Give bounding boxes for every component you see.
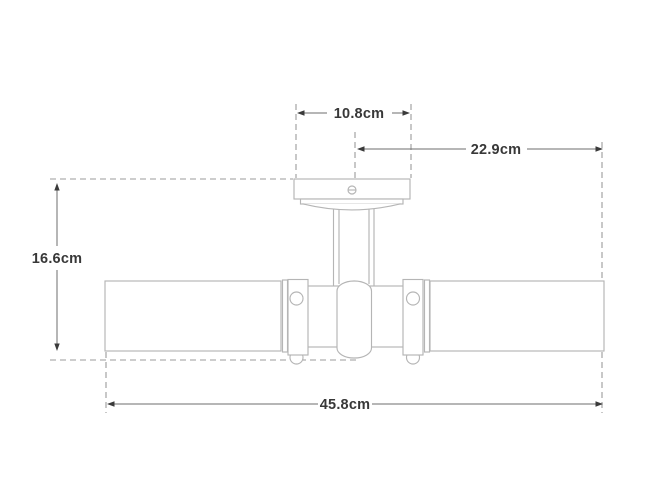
diagram-svg: 10.8cm 22.9cm 16.6cm 45.8cm	[0, 0, 670, 503]
arrow-down-icon	[54, 344, 59, 352]
canopy	[294, 179, 410, 210]
stem	[334, 204, 375, 288]
right-holder-band	[403, 280, 423, 356]
arrow-up-icon	[54, 183, 59, 191]
right-shade	[430, 281, 604, 351]
canopy-dome	[303, 204, 401, 210]
canopy-lip	[301, 199, 404, 204]
dimension-diagram: 10.8cm 22.9cm 16.6cm 45.8cm	[0, 0, 670, 503]
fixture	[105, 179, 604, 364]
right-arm	[369, 286, 405, 347]
canopy-width-label: 10.8cm	[334, 106, 384, 122]
center-body	[337, 281, 372, 358]
arrow-left-icon	[107, 401, 115, 406]
left-holder-band	[288, 280, 308, 356]
arrow-left-icon	[297, 110, 305, 115]
right-shade-ring	[425, 280, 430, 352]
overall-height-label: 16.6cm	[32, 251, 82, 267]
stem-body	[334, 204, 375, 288]
dimension-labels: 10.8cm 22.9cm 16.6cm 45.8cm	[32, 106, 521, 413]
arrow-right-icon	[403, 110, 411, 115]
center-to-end-label: 22.9cm	[471, 142, 521, 158]
overall-width-label: 45.8cm	[320, 397, 370, 413]
right-holder-bolt	[407, 292, 420, 305]
left-shade-ring	[283, 280, 288, 352]
left-arm	[306, 286, 339, 347]
arrow-left-icon	[357, 146, 365, 151]
left-shade	[105, 281, 281, 351]
left-holder-bolt	[290, 292, 303, 305]
